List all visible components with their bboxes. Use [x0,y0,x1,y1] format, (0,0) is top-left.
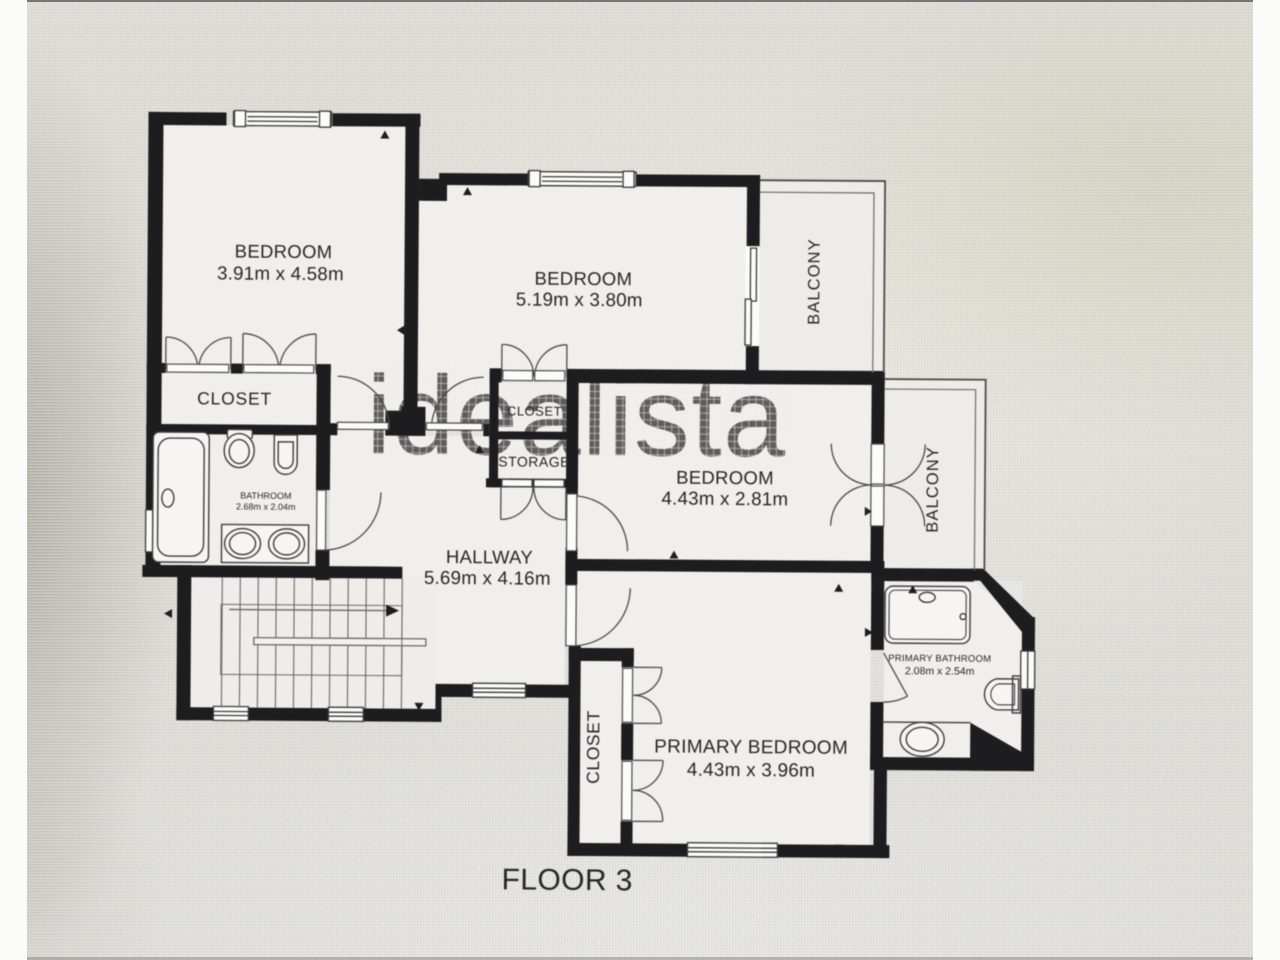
svg-text:CLOSET: CLOSET [197,388,272,409]
svg-text:STORAGE: STORAGE [498,453,570,470]
svg-text:BALCONY: BALCONY [924,446,943,533]
svg-text:BEDROOM: BEDROOM [534,268,632,290]
svg-text:HALLWAY: HALLWAY [446,546,533,568]
svg-text:5.69m x 4.16m: 5.69m x 4.16m [424,567,551,589]
svg-text:PRIMARY BATHROOM: PRIMARY BATHROOM [888,653,991,665]
svg-text:CLOSET: CLOSET [507,403,562,418]
svg-text:4.43m x 2.81m: 4.43m x 2.81m [661,487,788,509]
svg-text:5.19m x 3.80m: 5.19m x 3.80m [516,288,643,310]
svg-text:BATHROOM: BATHROOM [240,491,291,501]
svg-text:FLOOR 3: FLOOR 3 [502,863,633,897]
svg-text:2.68m x 2.04m: 2.68m x 2.04m [236,502,296,512]
svg-text:BEDROOM: BEDROOM [676,467,774,489]
svg-text:CLOSET: CLOSET [583,710,604,784]
svg-text:3.91m x 4.58m: 3.91m x 4.58m [217,262,344,284]
svg-text:PRIMARY BEDROOM: PRIMARY BEDROOM [654,736,848,758]
svg-text:4.43m x 3.96m: 4.43m x 3.96m [687,760,815,782]
svg-text:BALCONY: BALCONY [805,238,824,325]
svg-text:BEDROOM: BEDROOM [235,241,333,263]
svg-text:2.08m x 2.54m: 2.08m x 2.54m [905,665,975,677]
